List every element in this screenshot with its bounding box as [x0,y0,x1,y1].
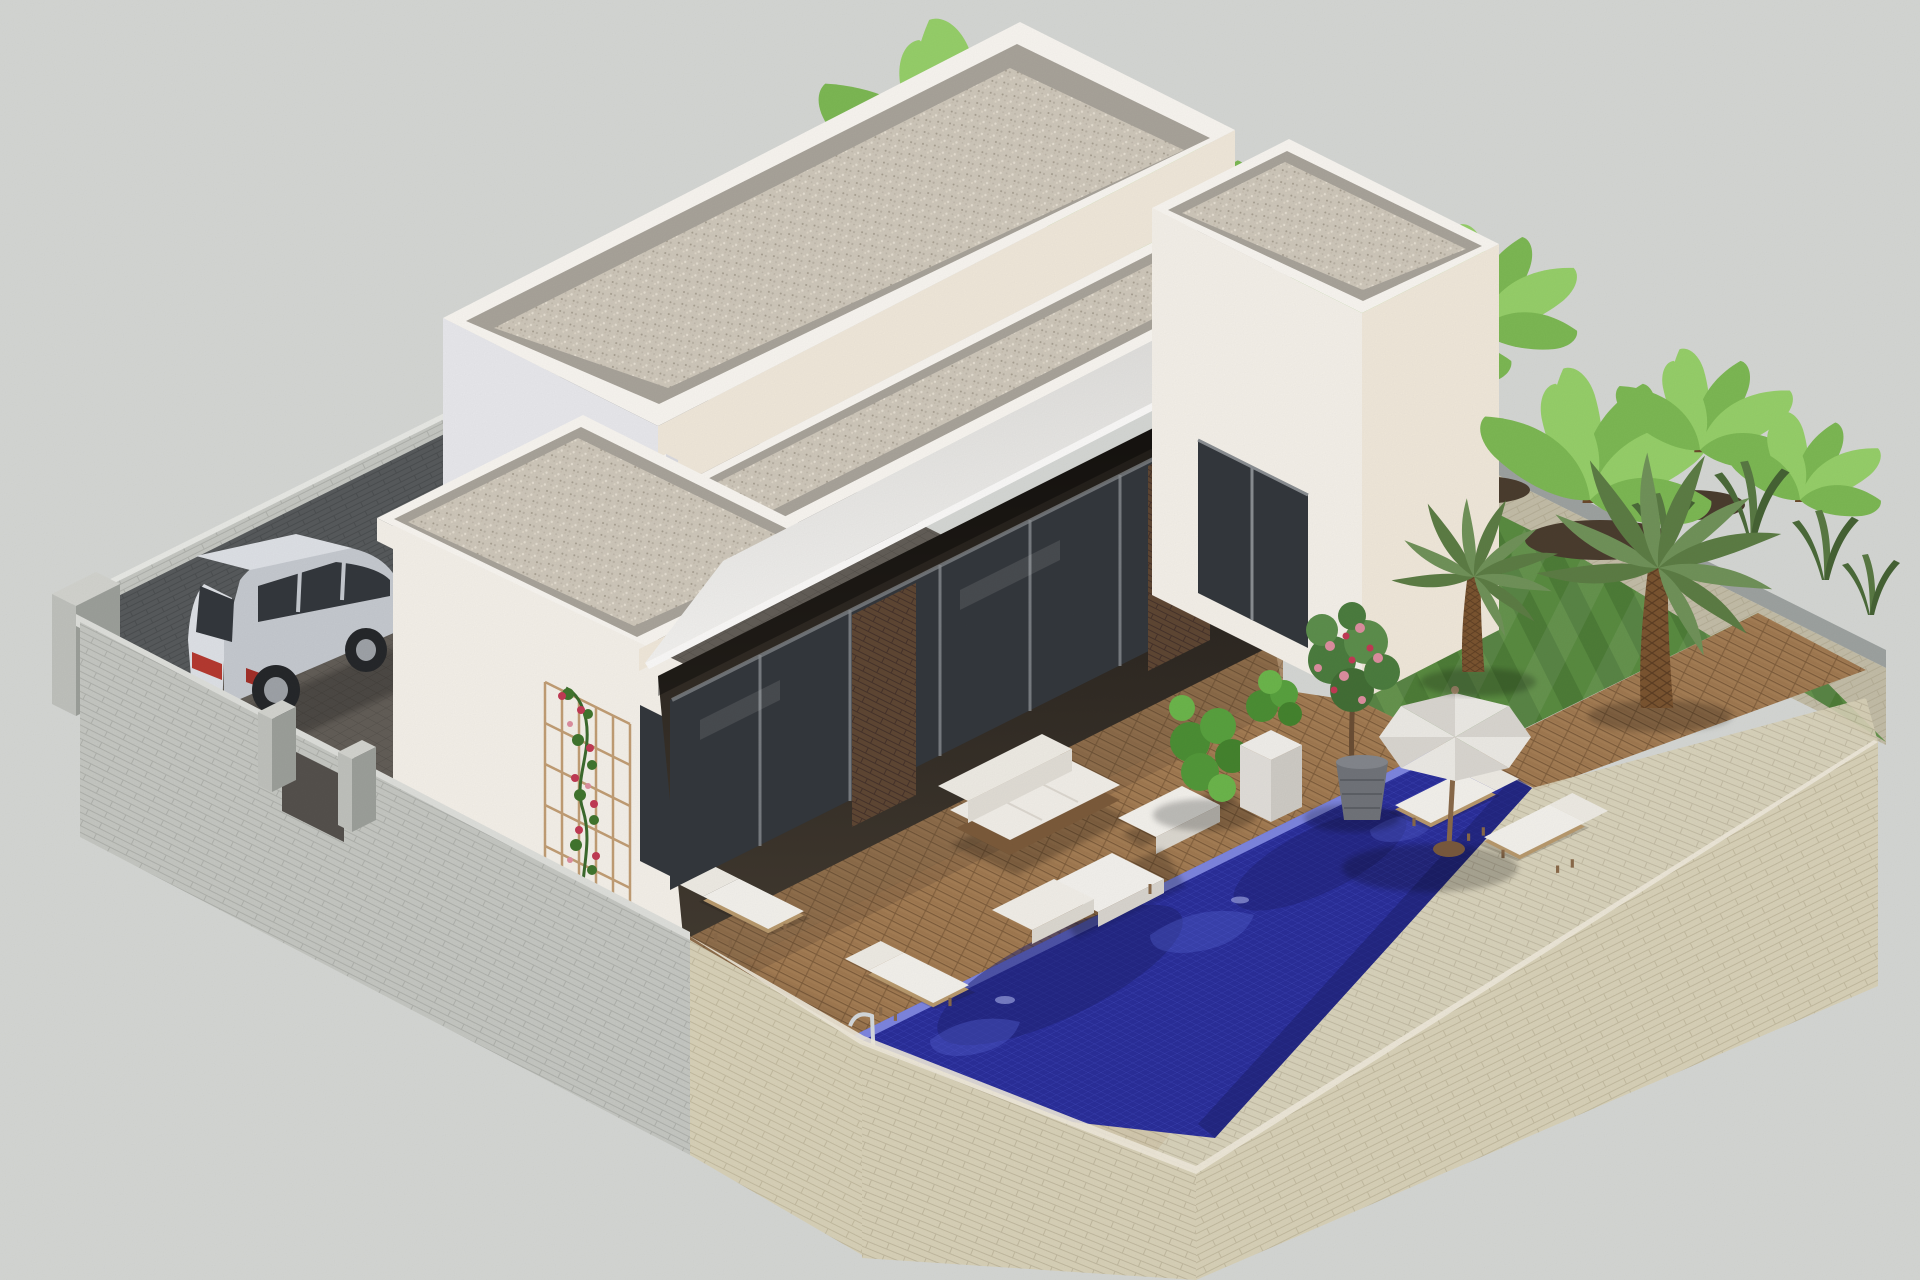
render-viewport: 3D isometric architectural visualization… [0,0,1920,1280]
render-grain [0,0,1920,1280]
villa-render: 3D isometric architectural visualization… [0,0,1920,1280]
